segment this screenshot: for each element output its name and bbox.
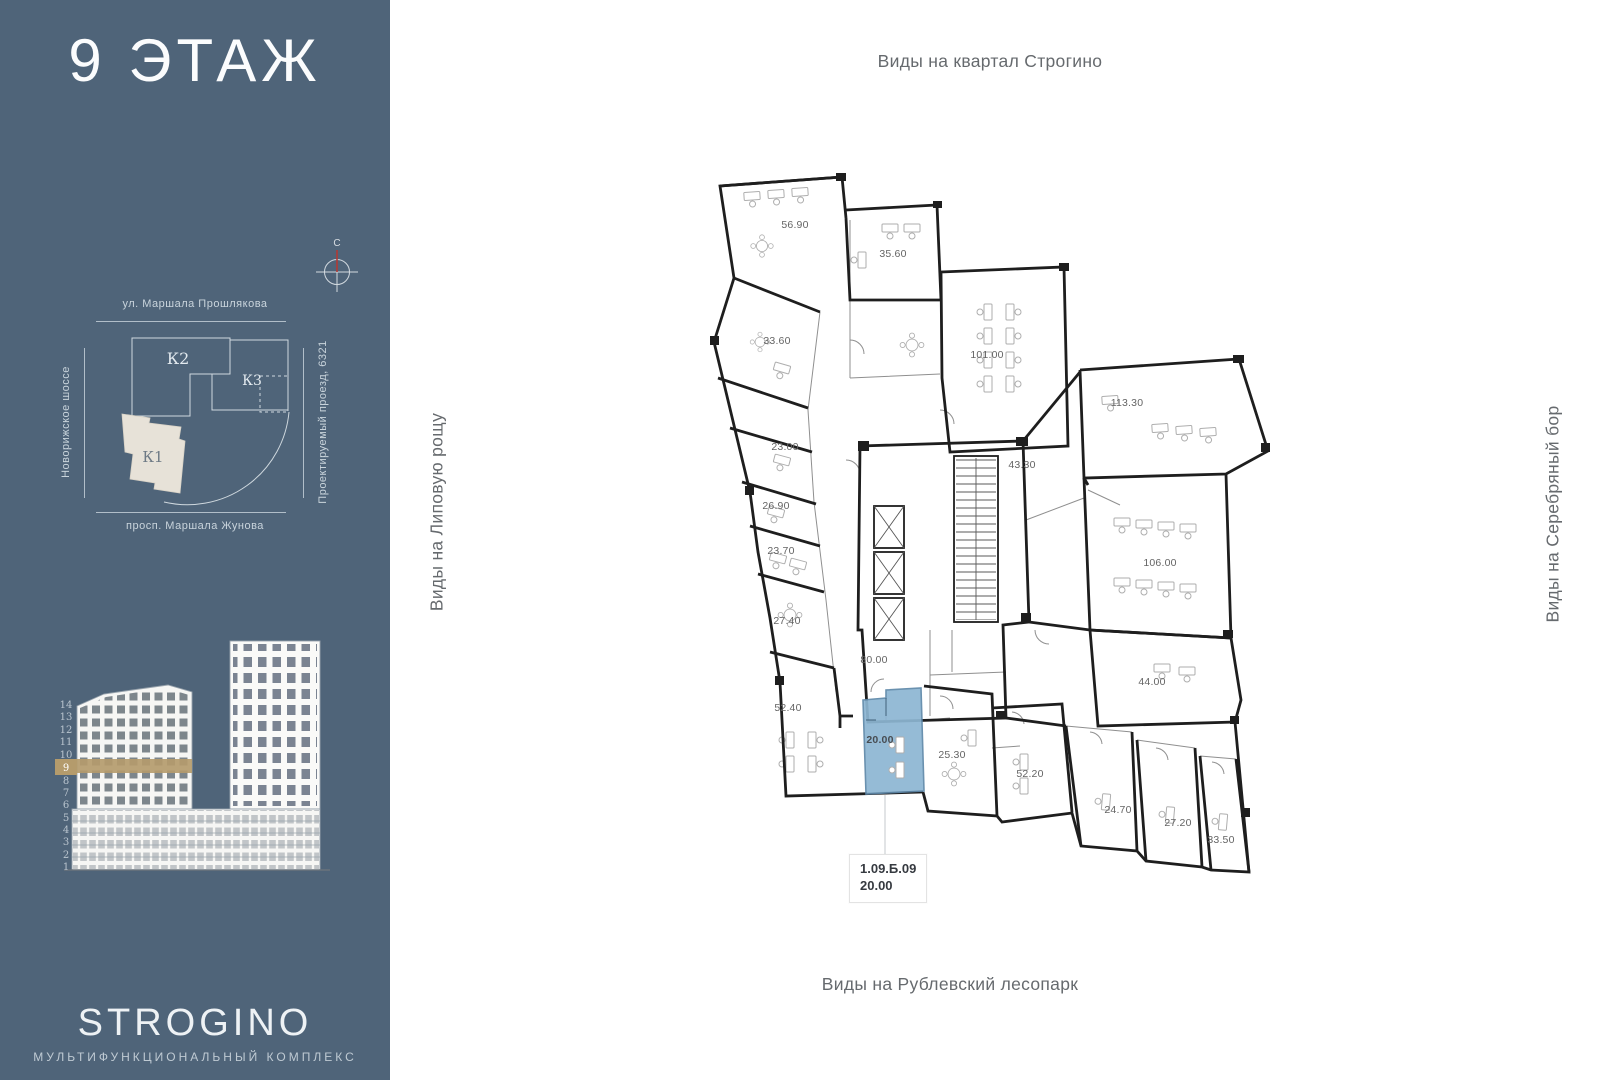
street-label-right: Проектируемый проезд, 6321 (317, 340, 329, 503)
floor-number[interactable]: 8 (63, 776, 69, 787)
elevation-podium (64, 809, 330, 870)
room-area-label: 113.30 (1111, 397, 1144, 409)
room-area-label: 33.60 (763, 335, 790, 347)
room-area-label: 52.40 (774, 702, 801, 714)
room-area-label: 24.70 (1104, 804, 1131, 816)
building-elevation: 14 13 12 11 10 9 8 7 6 5 4 3 2 1 (52, 638, 344, 880)
floor-number[interactable]: 10 (60, 750, 73, 761)
floor-number[interactable]: 11 (60, 737, 73, 748)
building-k1-label: К1 (142, 448, 163, 466)
room-area-label: 101.00 (970, 349, 1003, 361)
room-area-label: 35.60 (879, 248, 906, 260)
floor-number[interactable]: 7 (63, 788, 69, 799)
room-area-label: 56.90 (781, 219, 808, 231)
view-label-right: Виды на Серебряный бор (1543, 405, 1564, 622)
floor-number[interactable]: 4 (63, 825, 69, 836)
floor-number[interactable]: 5 (63, 813, 69, 824)
floor-number[interactable]: 13 (60, 712, 73, 723)
building-k2-label: К2 (167, 349, 190, 368)
elevation-left-tower (77, 685, 192, 809)
room-area-label: 80.00 (860, 654, 887, 666)
floor-number[interactable]: 1 (63, 862, 69, 873)
floor-number[interactable]: 14 (60, 700, 73, 711)
logo-title: STROGINO (0, 1002, 390, 1045)
street-label-top: ул. Маршала Прошлякова (45, 298, 345, 310)
logo-subtitle: МУЛЬТИФУНКЦИОНАЛЬНЫЙ КОМПЛЕКС (0, 1050, 390, 1064)
floor-plan: 56.90 35.60 33.60 101.00 23.00 43.30 113… (690, 160, 1290, 890)
street-label-bottom: просп. Маршала Жунова (45, 520, 345, 532)
unit-code: 1.09.Б.09 (860, 861, 916, 878)
floor-number[interactable]: 3 (63, 837, 69, 848)
room-area-label: 23.70 (767, 545, 794, 557)
floor-title: 9 ЭТАЖ (0, 26, 390, 95)
sidebar: 9 ЭТАЖ С ул. Маршала Прошлякова просп. М… (0, 0, 390, 1080)
room-area-label: 52.20 (1016, 768, 1043, 780)
room-area-label: 27.40 (773, 615, 800, 627)
site-map-frame-bottom (96, 512, 286, 513)
building-k3-label: К3 (242, 373, 262, 389)
view-label-top: Виды на квартал Строгино (690, 51, 1290, 72)
floor-number-active[interactable]: 9 (63, 763, 69, 774)
room-area-label: 23.00 (771, 441, 798, 453)
floor-number[interactable]: 12 (60, 725, 73, 736)
floor-number[interactable]: 2 (63, 850, 69, 861)
unit-area-label: 20.00 (866, 734, 893, 746)
room-area-label: 43.30 (1008, 459, 1035, 471)
unit-callout-area: 20.00 (860, 878, 916, 895)
site-map: К2 К3 К1 (92, 330, 304, 508)
compass-icon: С (313, 236, 361, 294)
view-label-left: Виды на Липовую рощу (427, 413, 448, 611)
room-area-label: 27.20 (1164, 817, 1191, 829)
room-area-label: 44.00 (1138, 676, 1165, 688)
site-map-frame-top (96, 321, 286, 322)
room-area-label: 33.50 (1207, 834, 1234, 846)
room-area-label: 26.90 (762, 500, 789, 512)
floor-number[interactable]: 6 (63, 800, 69, 811)
room-area-label: 106.00 (1143, 557, 1176, 569)
street-label-left: Новорижское шоссе (60, 366, 72, 478)
stair-core (874, 458, 996, 640)
elevation-right-tower (230, 641, 320, 809)
unit-callout[interactable]: 1.09.Б.09 20.00 (849, 854, 927, 903)
interior-partitions (808, 220, 1236, 774)
room-area-label: 25.30 (938, 749, 965, 761)
compass-north-label: С (333, 238, 340, 249)
elevation-floor9-band (77, 759, 192, 773)
site-map-frame-left (84, 348, 85, 498)
view-label-bottom: Виды на Рублевский лесопарк (650, 974, 1250, 995)
page: 9 ЭТАЖ С ул. Маршала Прошлякова просп. М… (0, 0, 1616, 1080)
